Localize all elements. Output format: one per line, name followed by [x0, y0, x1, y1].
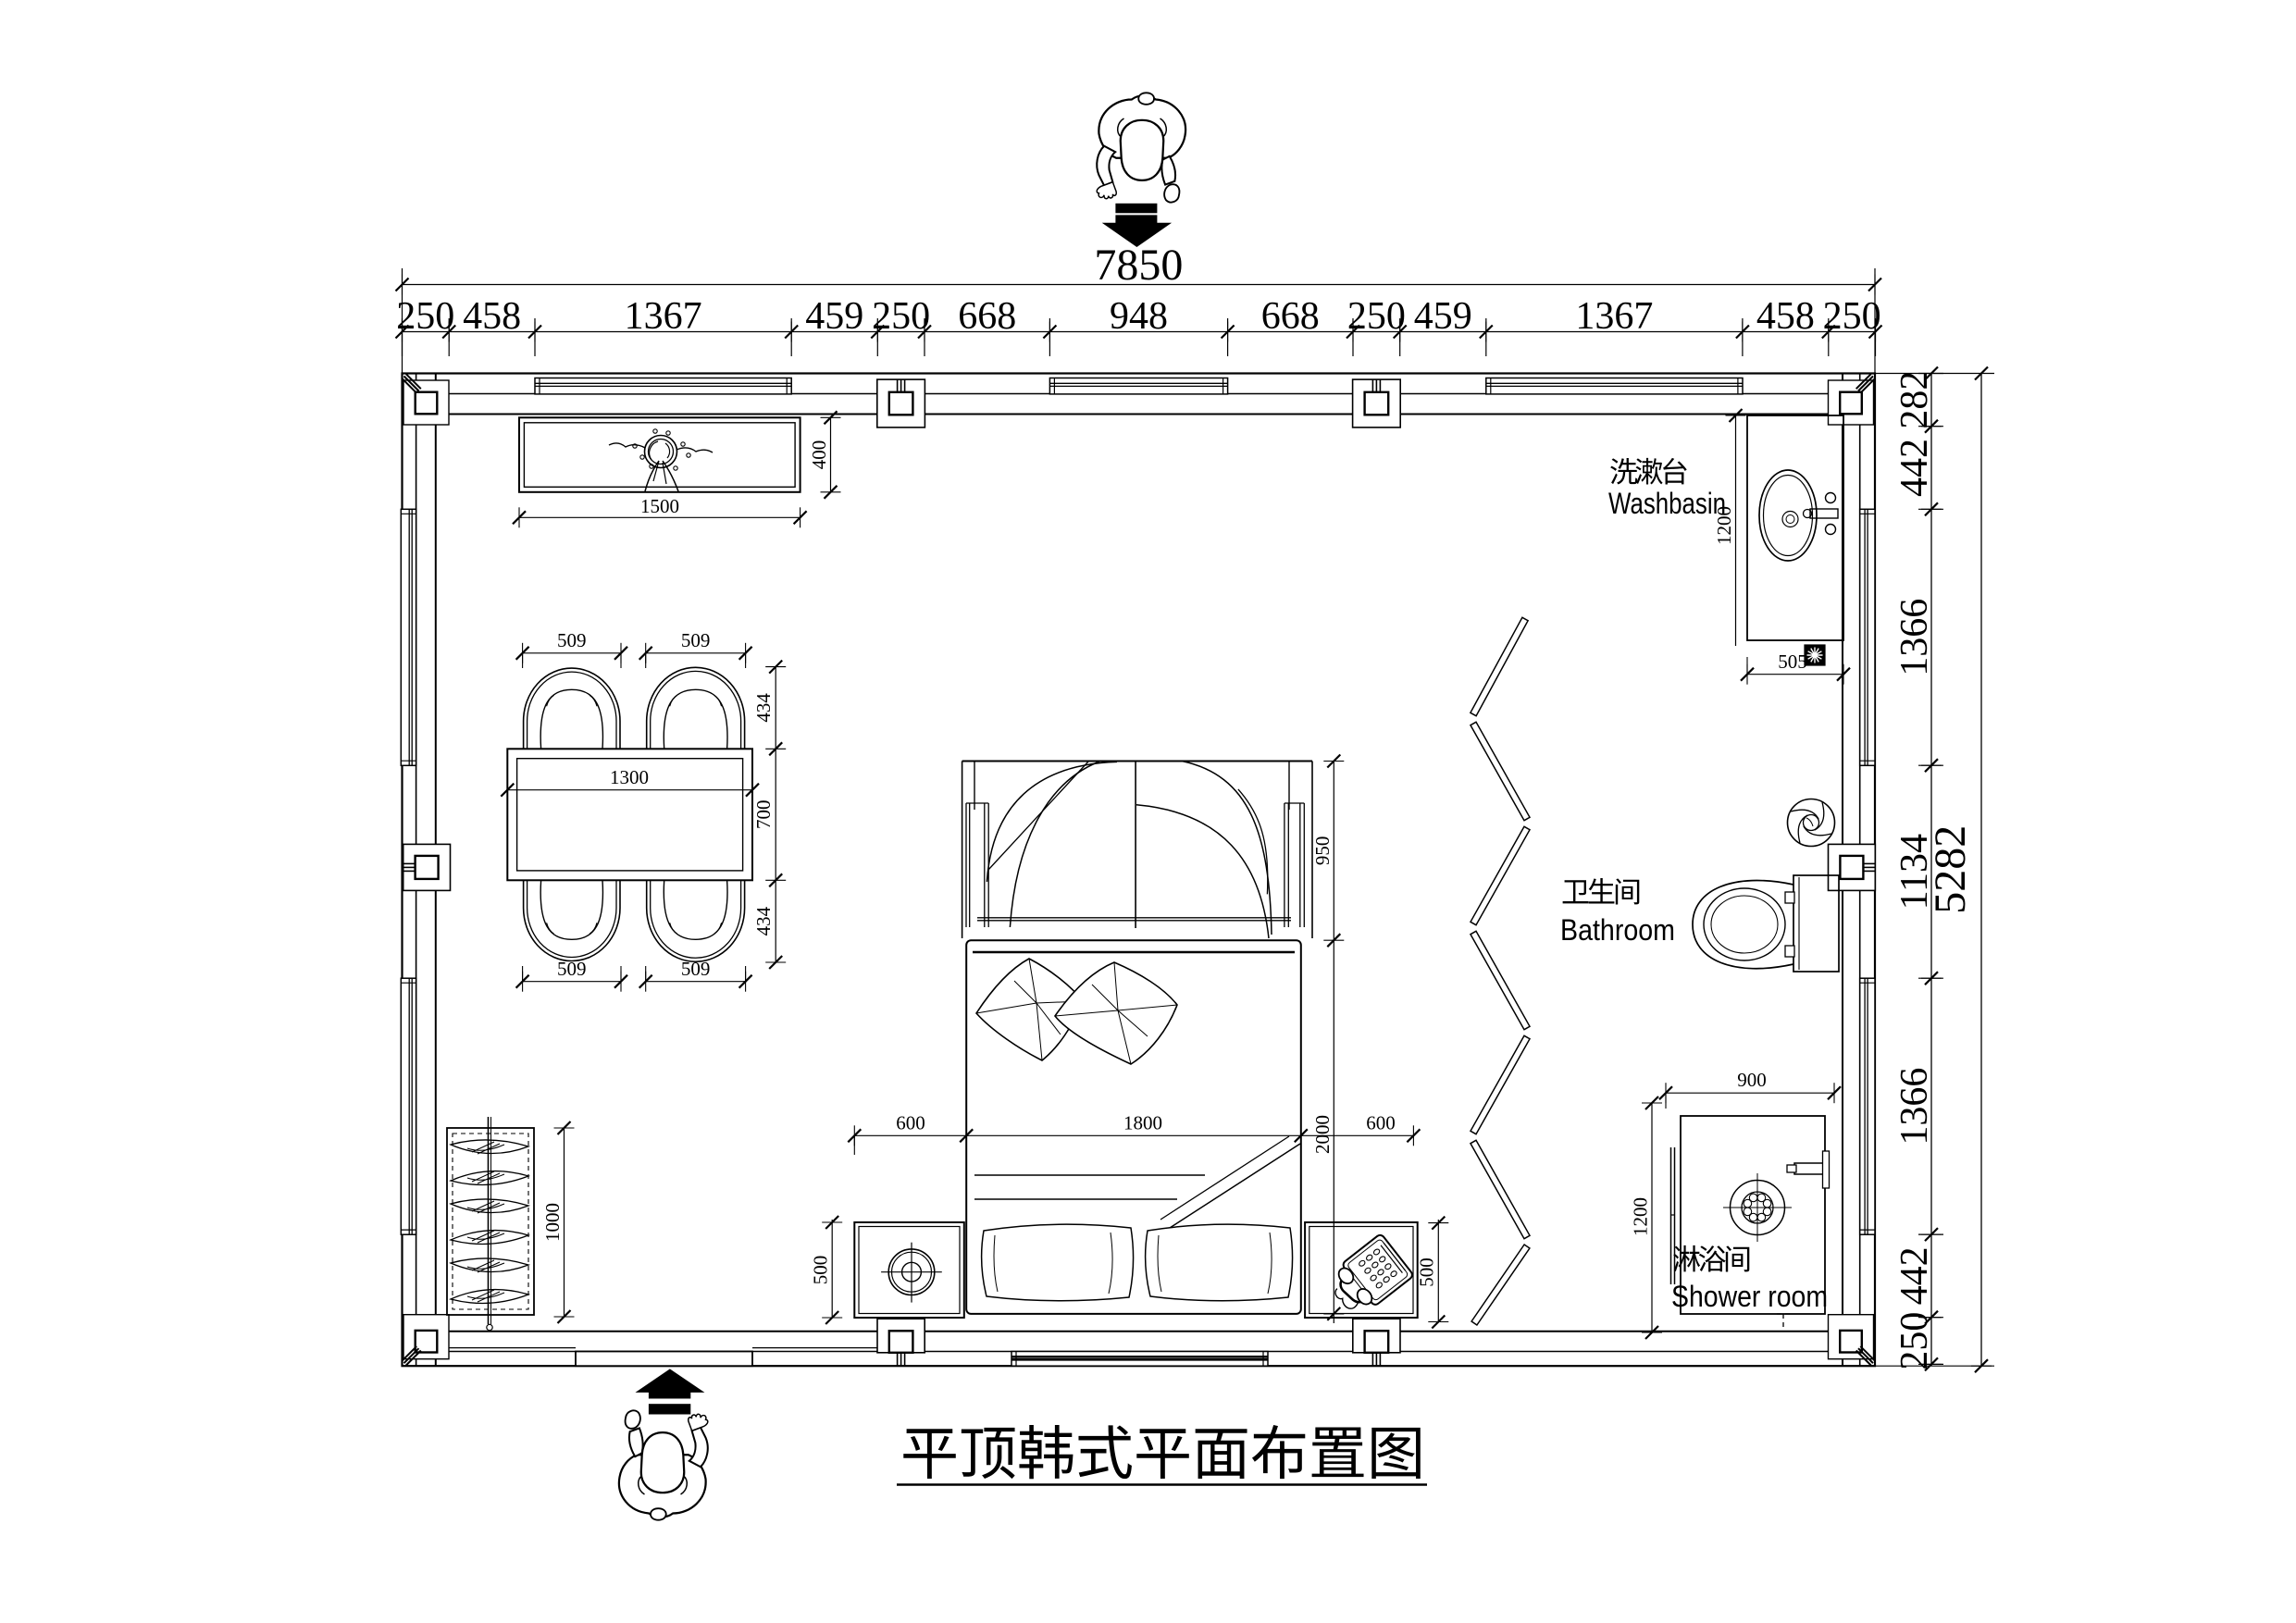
- svg-text:509: 509: [557, 958, 587, 980]
- svg-text:400: 400: [808, 440, 830, 470]
- svg-text:509: 509: [681, 629, 711, 651]
- svg-text:2000: 2000: [1311, 1115, 1334, 1154]
- svg-text:Bathroom: Bathroom: [1560, 913, 1675, 947]
- svg-text:1500: 1500: [640, 495, 679, 517]
- svg-text:1800: 1800: [1123, 1112, 1162, 1134]
- svg-text:459: 459: [805, 295, 863, 338]
- svg-text:505: 505: [1778, 650, 1807, 673]
- svg-text:250: 250: [1347, 295, 1406, 338]
- svg-text:442: 442: [1893, 1246, 1936, 1305]
- svg-text:1366: 1366: [1893, 599, 1936, 676]
- svg-text:948: 948: [1110, 295, 1168, 338]
- svg-text:Shower room: Shower room: [1671, 1280, 1828, 1313]
- svg-text:1366: 1366: [1893, 1068, 1936, 1146]
- svg-text:250: 250: [872, 295, 930, 338]
- svg-text:600: 600: [896, 1112, 925, 1134]
- svg-text:282: 282: [1893, 371, 1936, 429]
- svg-text:509: 509: [681, 958, 711, 980]
- svg-text:250: 250: [1893, 1312, 1936, 1370]
- svg-text:600: 600: [1366, 1112, 1396, 1134]
- svg-text:459: 459: [1414, 295, 1472, 338]
- svg-text:442: 442: [1893, 439, 1936, 497]
- svg-text:250: 250: [1823, 295, 1881, 338]
- svg-text:1300: 1300: [610, 766, 649, 788]
- svg-text:1000: 1000: [541, 1203, 564, 1242]
- svg-text:509: 509: [557, 629, 587, 651]
- svg-text:500: 500: [1416, 1258, 1438, 1287]
- svg-text:1367: 1367: [1575, 295, 1653, 338]
- svg-text:250: 250: [396, 295, 454, 338]
- svg-text:668: 668: [1261, 295, 1320, 338]
- svg-text:950: 950: [1311, 836, 1334, 866]
- svg-text:458: 458: [1756, 295, 1815, 338]
- svg-text:434: 434: [752, 906, 775, 935]
- svg-text:458: 458: [463, 295, 521, 338]
- svg-text:Washbasin: Washbasin: [1608, 487, 1726, 520]
- svg-text:5282: 5282: [1926, 825, 1975, 914]
- svg-text:668: 668: [958, 295, 1016, 338]
- svg-text:434: 434: [752, 693, 775, 723]
- svg-text:7850: 7850: [1094, 241, 1183, 290]
- svg-text:500: 500: [810, 1256, 832, 1285]
- svg-text:700: 700: [752, 800, 775, 830]
- svg-text:1367: 1367: [625, 295, 702, 338]
- svg-text:900: 900: [1737, 1069, 1767, 1091]
- svg-text:1200: 1200: [1630, 1197, 1652, 1236]
